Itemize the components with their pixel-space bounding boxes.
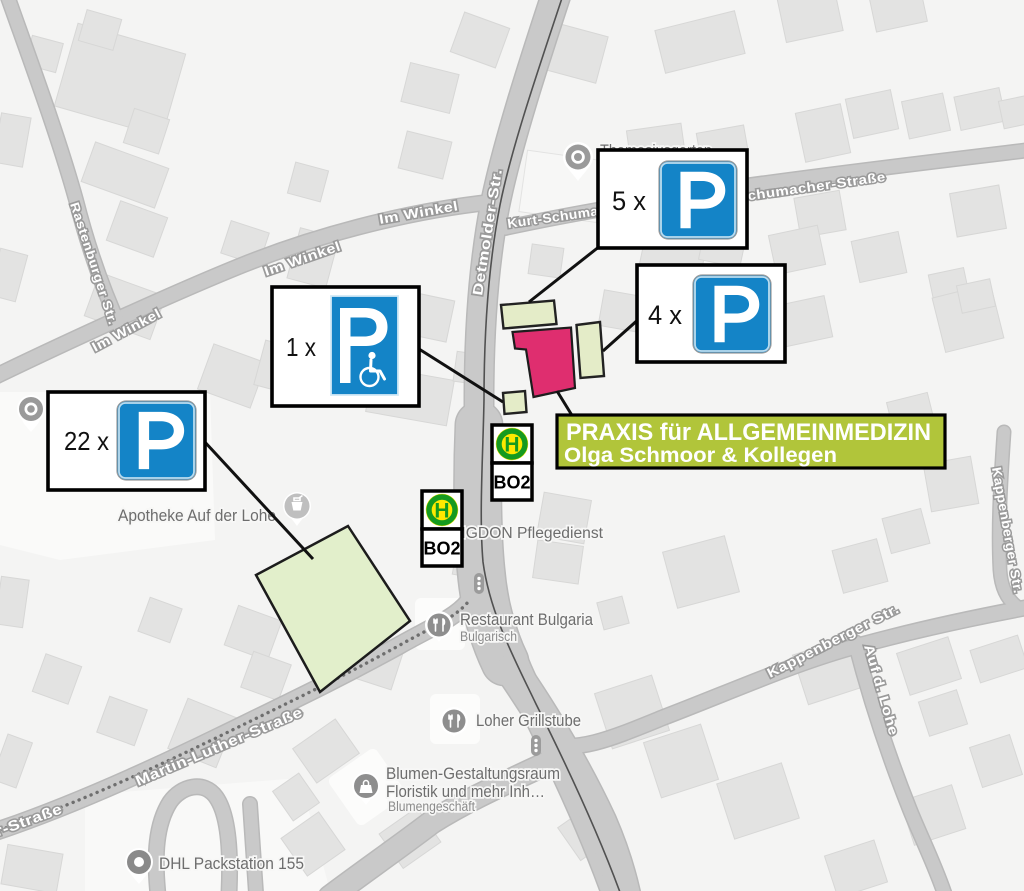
- svg-text:PRAXIS für ALLGEMEINMEDIZIN: PRAXIS für ALLGEMEINMEDIZIN: [566, 419, 931, 446]
- svg-text:H: H: [504, 434, 519, 457]
- svg-text:22 x: 22 x: [64, 426, 109, 456]
- svg-text:Olga Schmoor & Kollegen: Olga Schmoor & Kollegen: [564, 444, 837, 467]
- svg-text:4 x: 4 x: [648, 300, 682, 330]
- svg-text:Bulgarisch: Bulgarisch: [460, 629, 517, 644]
- svg-text:5 x: 5 x: [612, 186, 646, 216]
- svg-text:Restaurant Bulgaria: Restaurant Bulgaria: [460, 611, 594, 629]
- svg-text:H: H: [434, 500, 449, 523]
- svg-text:1 x: 1 x: [286, 332, 316, 362]
- svg-text:BIGDON Pflegedienst: BIGDON Pflegedienst: [451, 525, 604, 542]
- svg-text:BO2: BO2: [423, 539, 460, 559]
- svg-text:Blumen-Gestaltungsraum: Blumen-Gestaltungsraum: [386, 765, 560, 783]
- svg-text:DHL Packstation 155: DHL Packstation 155: [159, 854, 304, 873]
- svg-text:Apotheke Auf der Lohe: Apotheke Auf der Lohe: [118, 507, 276, 525]
- svg-text:Blumengeschäft: Blumengeschäft: [388, 799, 475, 814]
- svg-text:Loher Grillstube: Loher Grillstube: [476, 712, 581, 730]
- svg-text:BO2: BO2: [493, 473, 530, 493]
